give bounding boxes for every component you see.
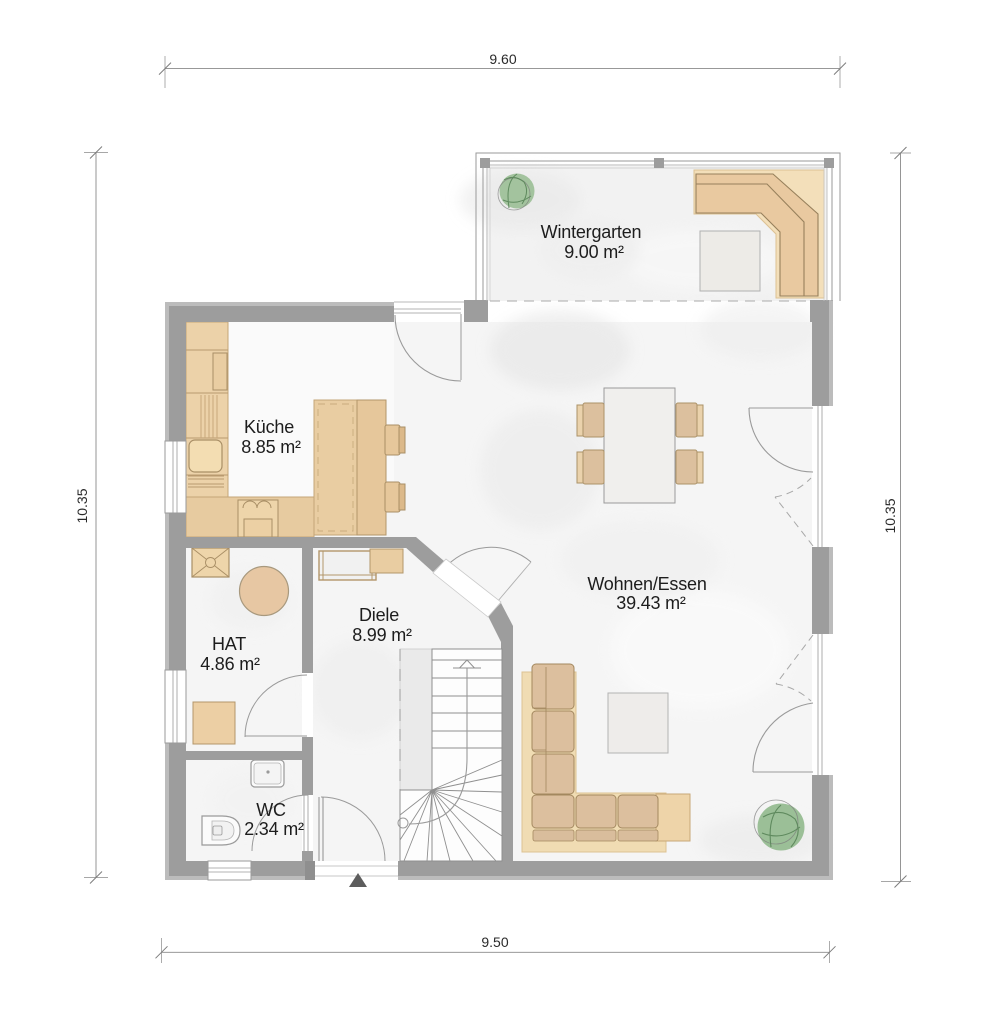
- svg-text:Diele: Diele: [359, 605, 399, 625]
- svg-text:4.86 m²: 4.86 m²: [200, 654, 260, 674]
- svg-text:8.85 m²: 8.85 m²: [241, 437, 301, 457]
- svg-text:9.00 m²: 9.00 m²: [564, 242, 624, 262]
- svg-text:8.99 m²: 8.99 m²: [352, 625, 412, 645]
- svg-text:Küche: Küche: [244, 417, 294, 437]
- svg-text:10.35: 10.35: [74, 488, 90, 523]
- svg-text:2.34 m²: 2.34 m²: [244, 819, 304, 839]
- svg-text:Wohnen/Essen: Wohnen/Essen: [587, 574, 706, 594]
- svg-text:9.60: 9.60: [489, 51, 516, 67]
- svg-text:39.43 m²: 39.43 m²: [616, 593, 686, 613]
- svg-text:9.50: 9.50: [481, 934, 508, 950]
- svg-text:HAT: HAT: [212, 634, 246, 654]
- svg-text:WC: WC: [256, 800, 286, 820]
- svg-text:10.35: 10.35: [882, 498, 898, 533]
- svg-text:Wintergarten: Wintergarten: [541, 222, 642, 242]
